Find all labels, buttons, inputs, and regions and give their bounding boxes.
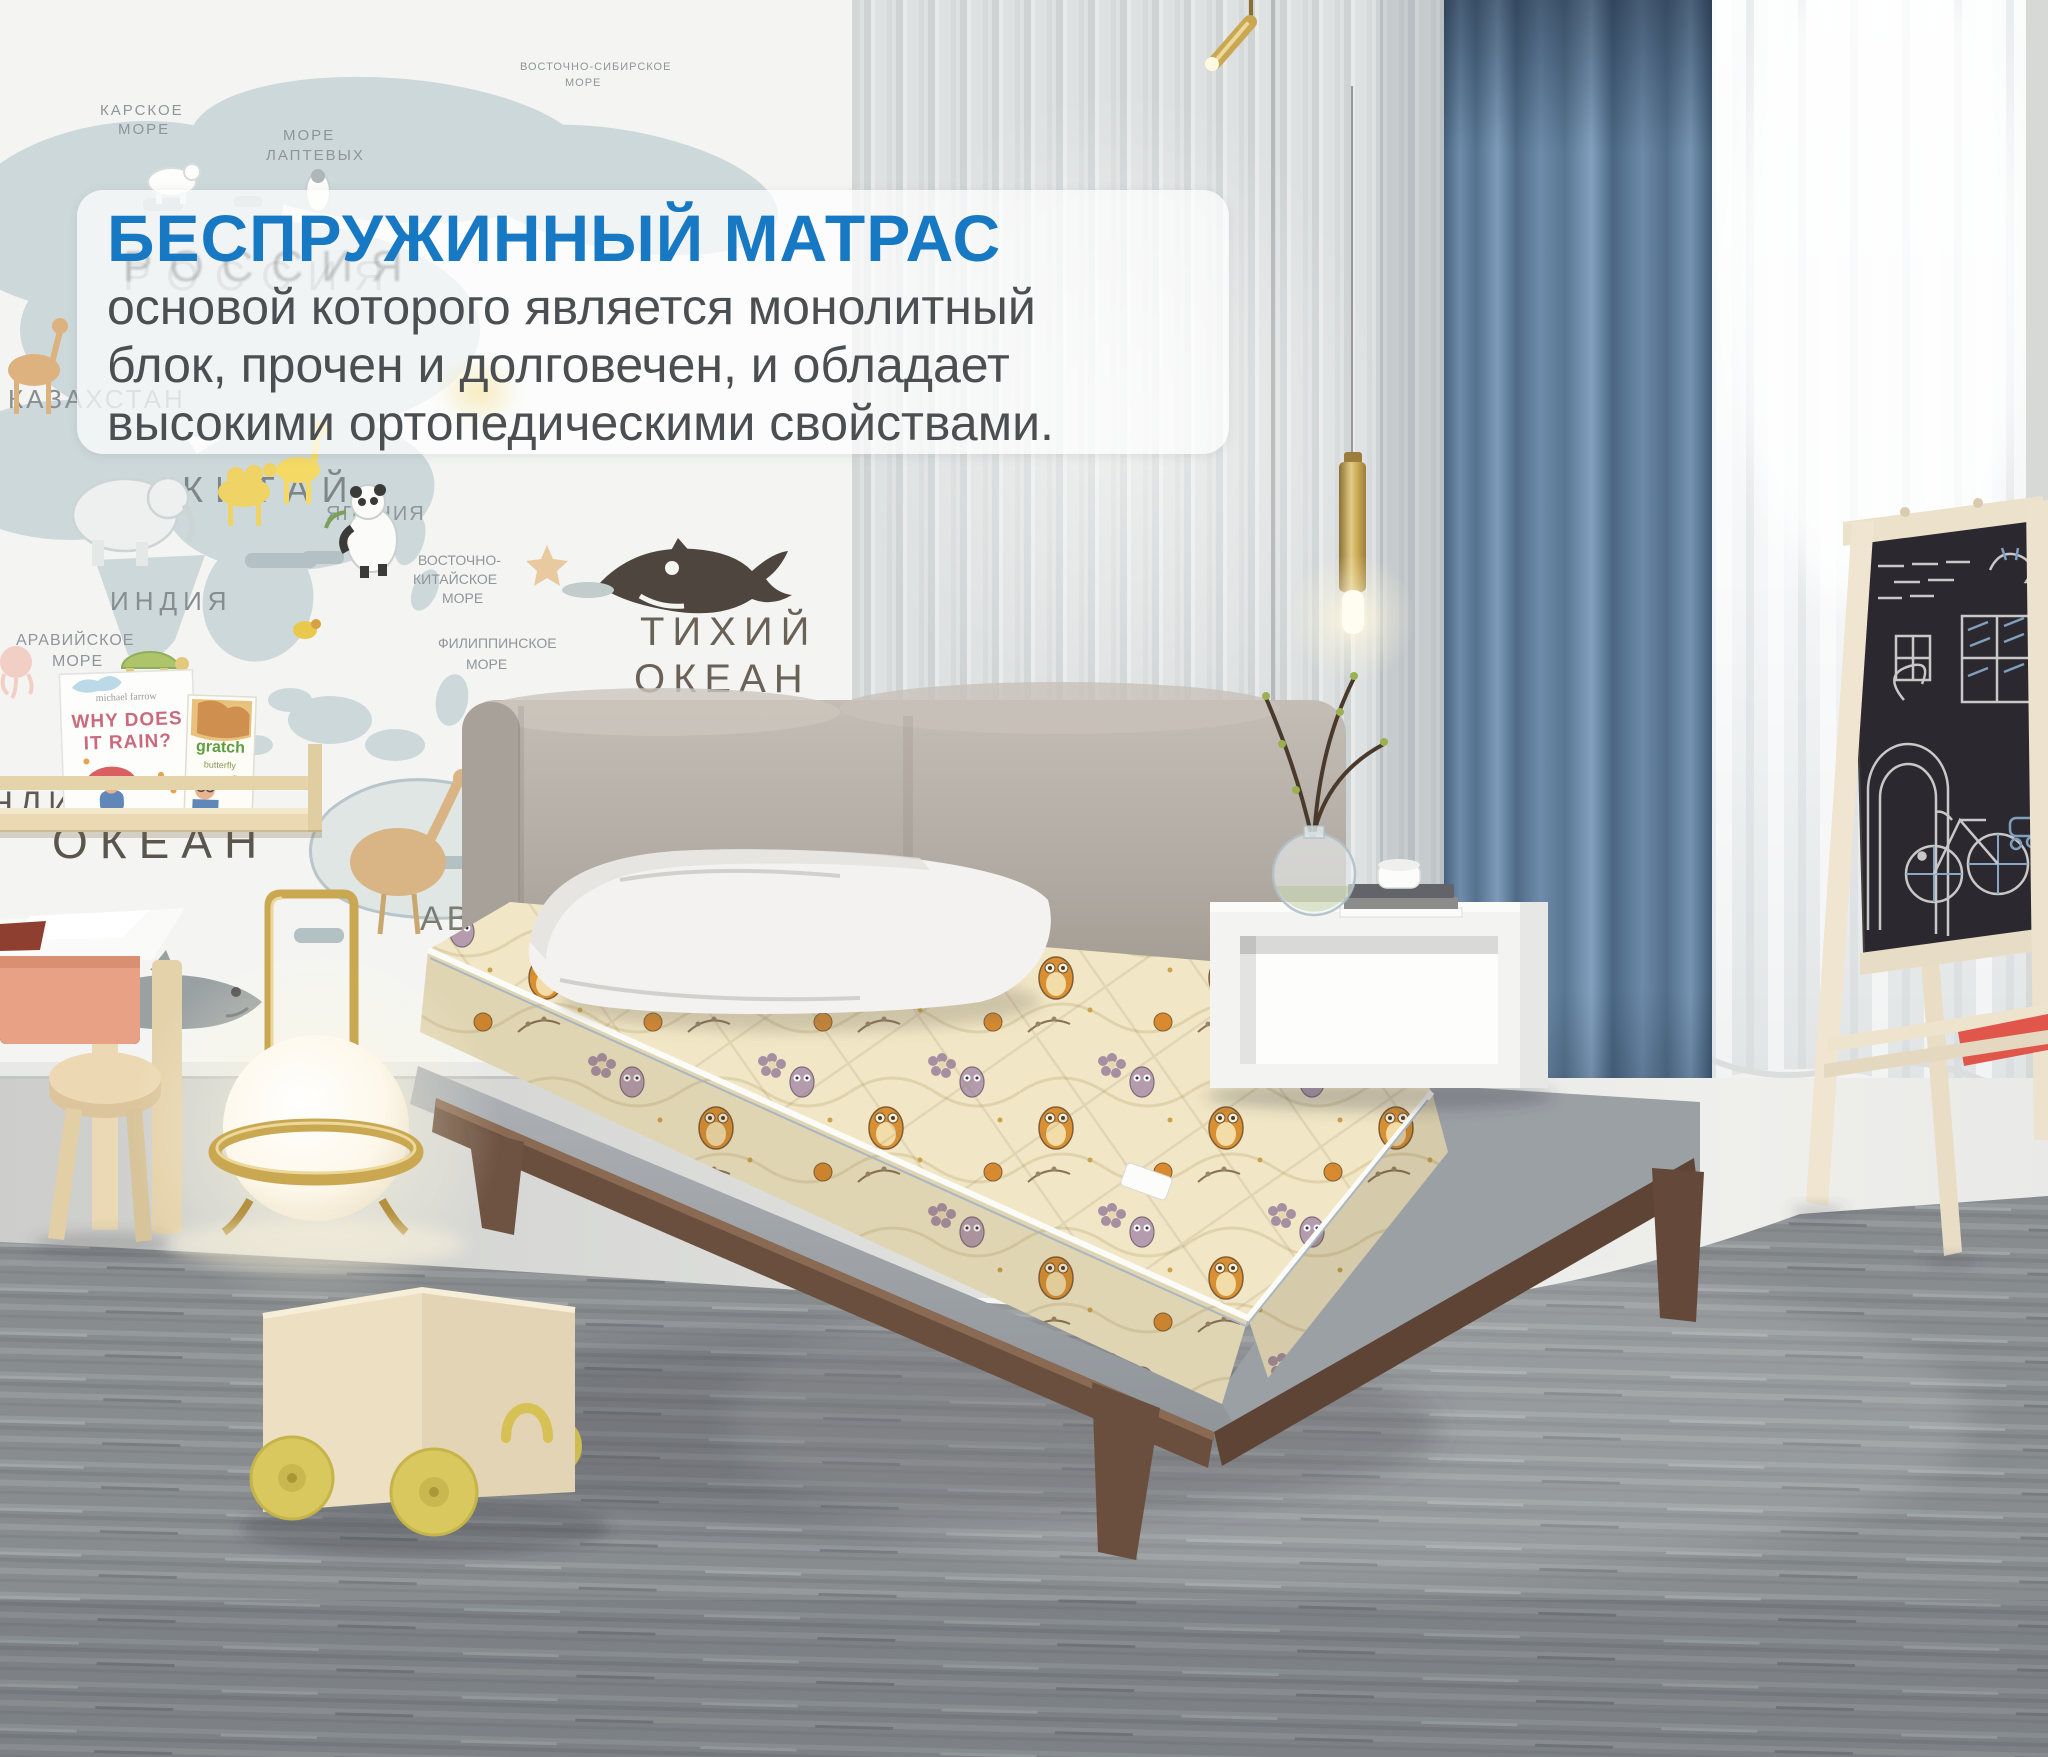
book2-word: gratch	[196, 738, 245, 757]
map-label-east-siberian-1: ВОСТОЧНО-СИБИРСКОЕ	[520, 61, 671, 73]
book1-title-2: IT RAIN?	[83, 730, 172, 754]
cart-wheel-right	[391, 1449, 477, 1535]
map-label-laptev-1: МОРЕ	[283, 127, 335, 144]
map-label-philippine-1: ФИЛИППИНСКОЕ	[438, 635, 557, 651]
toy-cart	[240, 1290, 610, 1556]
map-label-arabian-2: МОРЕ	[52, 653, 103, 670]
map-label-kara-1: КАРСКОЕ	[100, 102, 184, 119]
picture-book-butterfly: gratch butterfly	[184, 695, 256, 825]
book2-subword: butterfly	[204, 759, 237, 770]
nightstand-books	[1340, 884, 1462, 917]
map-label-eastchina-2: КИТАЙСКОЕ	[413, 570, 497, 587]
product-banner: КАРСКОЕ МОРЕ МОРЕ ЛАПТЕВЫХ ВОСТОЧНО-СИБИ…	[0, 0, 2048, 1757]
promo-body-line-2: блок, прочен и долговечен, и обладает	[107, 336, 1229, 394]
cart-wheel-left	[251, 1437, 333, 1519]
desk-coral-bin	[0, 956, 140, 1044]
promo-text-card: РОССИЯ БЕСПРУЖИННЫЙ МАТРАС основой котор…	[77, 190, 1229, 454]
bed-leg-right	[1652, 1168, 1704, 1322]
map-label-kara-2: МОРЕ	[118, 121, 170, 138]
promo-body-line-1: основой которого является монолитный	[107, 278, 1229, 336]
map-label-arabian-1: АРАВИЙСКОЕ	[16, 630, 134, 649]
map-label-philippine-2: МОРЕ	[466, 656, 507, 672]
promo-body: основой которого является монолитный бло…	[107, 278, 1229, 452]
map-label-india: ИНДИЯ	[110, 586, 233, 616]
map-label-east-siberian-2: МОРЕ	[565, 77, 601, 89]
map-animal-seal	[562, 582, 614, 598]
map-label-eastchina-1: ВОСТОЧНО-	[418, 552, 501, 568]
book1-author: michael farrow	[96, 691, 158, 704]
map-label-laptev-2: ЛАПТЕВЫХ	[266, 147, 365, 164]
cup	[1378, 859, 1420, 888]
map-label-pacific-1: ТИХИЙ	[640, 608, 817, 654]
book1-title-1: WHY DOES	[71, 708, 183, 733]
nightstand-opening	[1240, 936, 1498, 1064]
desk-red-book	[0, 921, 46, 951]
promo-heading: БЕСПРУЖИННЫЙ МАТРАС	[107, 206, 1229, 270]
promo-body-line-3: высокими ортопедическими свойствами.	[107, 394, 1229, 452]
map-label-eastchina-3: МОРЕ	[442, 590, 483, 606]
picture-book-rain: michael farrow WHY DOES IT RAIN?	[59, 670, 197, 828]
